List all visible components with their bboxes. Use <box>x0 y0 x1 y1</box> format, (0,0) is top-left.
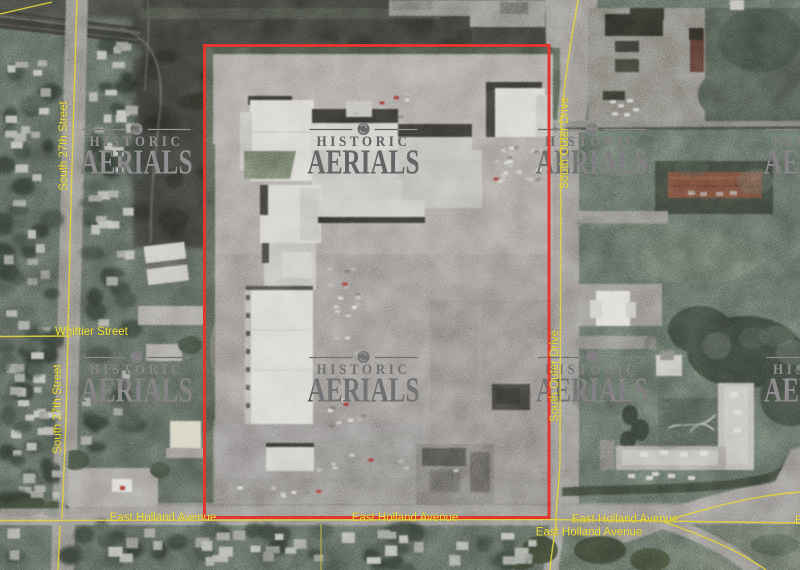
svg-text:E: E <box>795 515 800 527</box>
svg-text:South Outer Drive: South Outer Drive <box>549 330 561 422</box>
svg-text:East Holland Avenue: East Holland Avenue <box>110 512 217 524</box>
svg-text:East Holland Avenue: East Holland Avenue <box>536 527 643 539</box>
svg-text:Whittier Street: Whittier Street <box>55 326 129 338</box>
svg-text:South 27th Street: South 27th Street <box>52 363 64 453</box>
svg-text:South 27th Street: South 27th Street <box>58 100 70 190</box>
svg-text:East Holland Avenue: East Holland Avenue <box>572 514 679 526</box>
svg-text:East Holland Avenue: East Holland Avenue <box>352 512 459 524</box>
svg-text:South Outer Drive: South Outer Drive <box>559 97 571 189</box>
